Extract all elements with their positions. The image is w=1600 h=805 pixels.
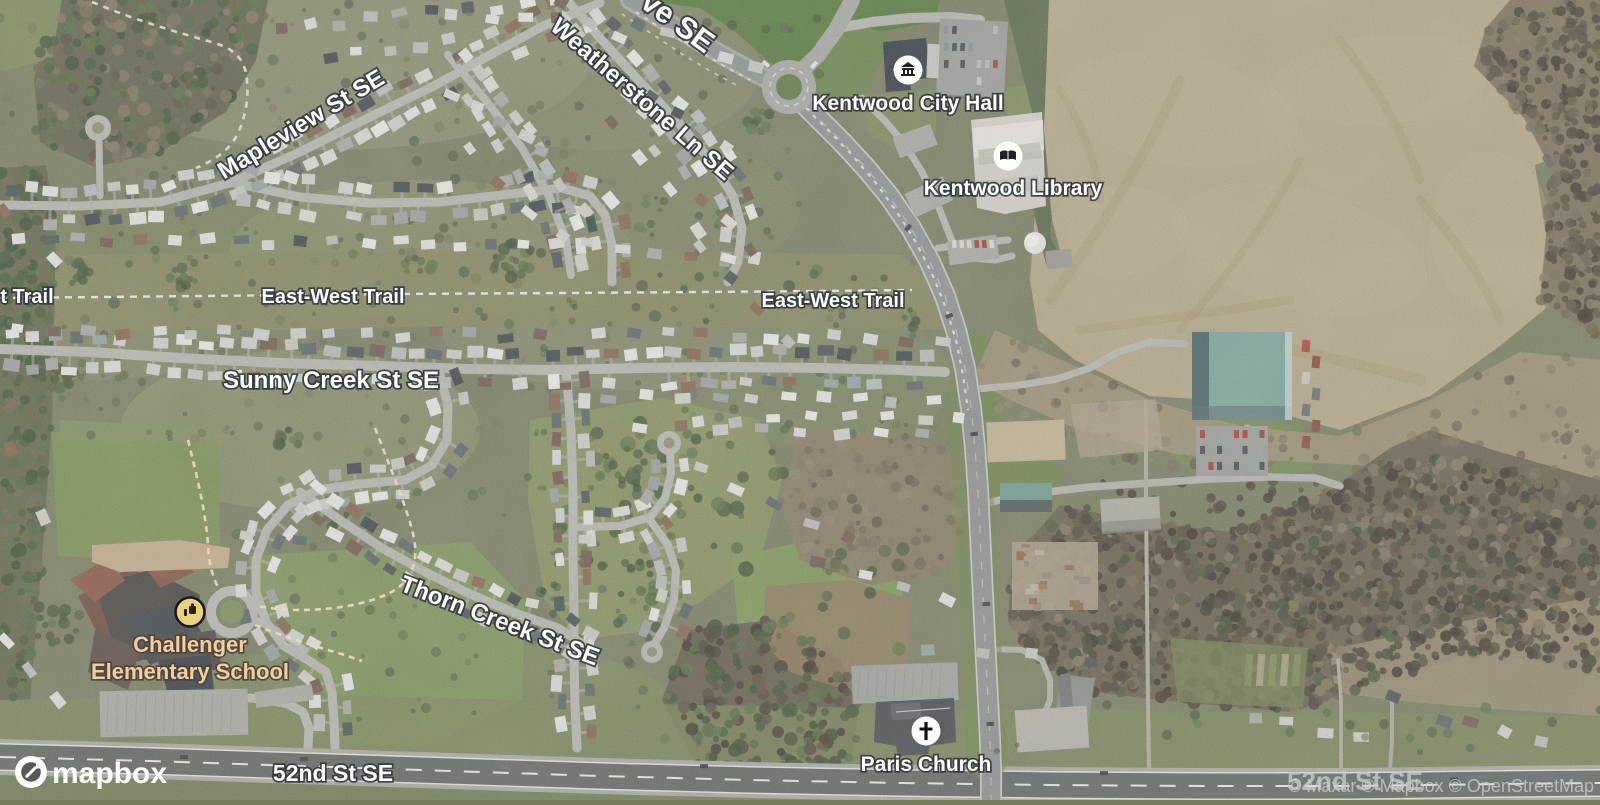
svg-text:52nd St SE: 52nd St SE [273, 760, 393, 786]
svg-text:Kentwood City Hall: Kentwood City Hall [812, 92, 1003, 115]
svg-text:Challenger: Challenger [133, 632, 247, 657]
svg-text:mapbox: mapbox [52, 757, 167, 790]
svg-text:Sunny Creek St SE: Sunny Creek St SE [223, 367, 439, 394]
svg-text:t Trail: t Trail [0, 286, 53, 308]
svg-text:Kentwood Library: Kentwood Library [924, 177, 1103, 200]
svg-text:© Maxar © Mapbox © OpenStreetM: © Maxar © Mapbox © OpenStreetMap [1288, 776, 1594, 796]
svg-text:Elementary School: Elementary School [91, 659, 289, 684]
svg-text:East-West Trail: East-West Trail [761, 290, 904, 312]
svg-text:East-West Trail: East-West Trail [261, 286, 404, 308]
svg-text:Paris Church: Paris Church [861, 753, 992, 776]
